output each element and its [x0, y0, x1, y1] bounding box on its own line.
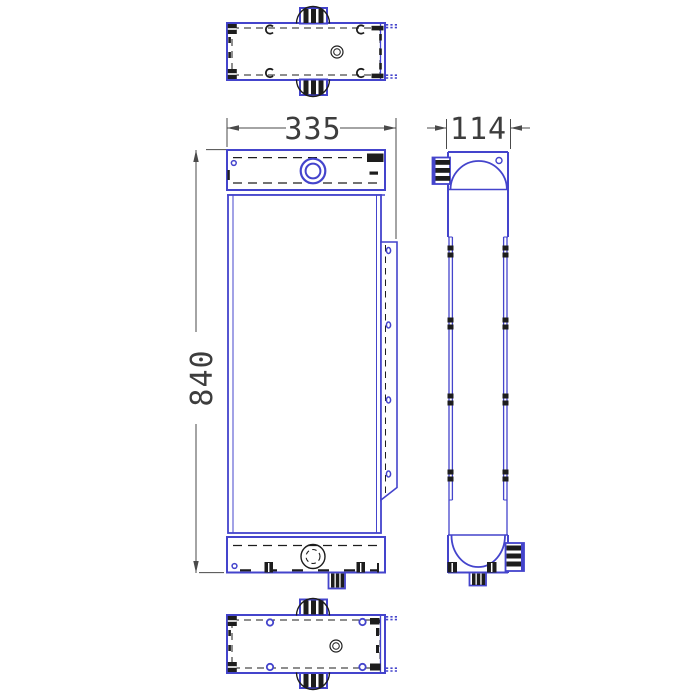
- front-core: [228, 195, 381, 533]
- arrowhead-right: [384, 125, 396, 131]
- top-view: [227, 7, 399, 97]
- bracket-hole: [386, 397, 390, 403]
- side-dome-lower: [452, 536, 506, 568]
- side-left-connector: [432, 158, 450, 185]
- side-dome-upper: [451, 161, 507, 190]
- side-view: [432, 152, 525, 586]
- top-view-right-tabs: [386, 25, 399, 78]
- front-top-vent-hole: [231, 161, 236, 166]
- front-view: [227, 150, 397, 589]
- bottom-view-right-clip: [370, 664, 381, 671]
- bracket-hole: [386, 248, 390, 254]
- top-view-right-clip: [372, 26, 384, 31]
- filler-cap: [301, 159, 326, 184]
- arrowhead-left: [227, 125, 239, 131]
- arrowhead-up: [193, 150, 198, 162]
- top-view-body: [227, 23, 385, 80]
- dimension-label-114: 114: [450, 112, 507, 147]
- arrowhead-down: [193, 561, 198, 573]
- dimension-label-840: 840: [185, 349, 220, 406]
- bracket-hole: [386, 471, 390, 477]
- dimension-label-335: 335: [284, 112, 341, 147]
- side-bolt-marks: [448, 246, 509, 482]
- front-bottom-vent-hole: [232, 564, 237, 569]
- side-bottom-port: [470, 573, 487, 586]
- arrowhead-left: [511, 125, 523, 131]
- front-bottom-port: [329, 573, 346, 589]
- top-view-right-clip: [372, 74, 384, 79]
- bottom-view: [227, 599, 399, 690]
- front-top-right-bracket: [367, 154, 384, 163]
- radiator-technical-drawing: 335 840 114: [0, 0, 700, 700]
- dimension-side-depth: 114: [427, 112, 530, 149]
- bottom-view-right-tabs: [386, 617, 399, 671]
- bottom-view-right-clip: [370, 618, 380, 625]
- side-mounting-bracket: [381, 242, 397, 500]
- drawing-svg: 335 840 114: [0, 0, 700, 700]
- arrowhead-right: [435, 125, 447, 131]
- dimension-front-height: 840: [185, 150, 226, 573]
- side-top-hole: [496, 158, 502, 164]
- side-right-connector: [506, 543, 525, 571]
- bracket-hole: [386, 322, 390, 328]
- side-core: [448, 237, 508, 535]
